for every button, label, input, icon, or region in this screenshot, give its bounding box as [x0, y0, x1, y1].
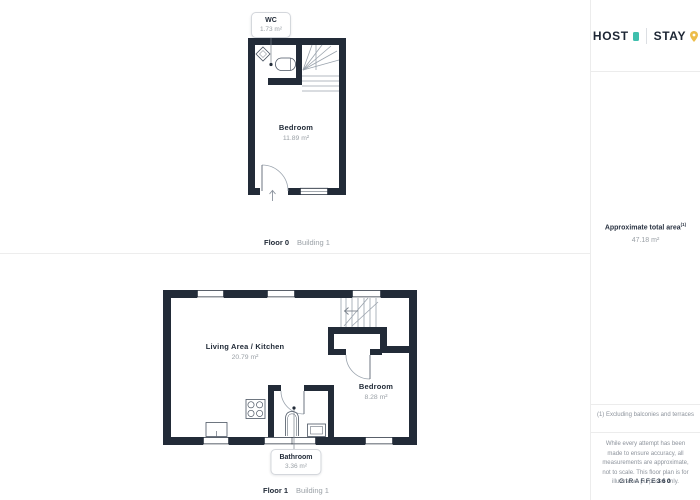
room-name: Living Area / Kitchen — [206, 342, 285, 351]
bathroom-area: 3.36 m² — [279, 463, 312, 470]
floor0-stair-wall — [296, 45, 302, 85]
logo-stay-text: STAY — [654, 29, 686, 43]
floor0-plan — [248, 37, 346, 201]
floor-label: Floor 0 — [264, 238, 289, 247]
bathroom-label-box: Bathroom 3.36 m² — [270, 449, 321, 475]
wc-corner-sink-icon — [256, 47, 270, 61]
wc-area: 1.73 m² — [260, 26, 282, 33]
total-area-value: 47.18 m² — [591, 237, 700, 244]
host-door-icon — [633, 32, 639, 41]
floors-divider — [0, 253, 590, 254]
floor0-wc-fixtures — [256, 47, 296, 71]
logo-host-text: HOST — [593, 29, 629, 43]
floor0-bedroom-label: Bedroom 11.89 m² — [279, 123, 313, 142]
floor1-bathroom-fixtures — [286, 412, 326, 437]
floor1-bedroom-label: Bedroom 8.28 m² — [359, 382, 393, 401]
total-area-label: Approximate total area(1) — [591, 222, 700, 231]
building-label: Building 1 — [296, 486, 329, 495]
room-name: Bedroom — [359, 382, 393, 391]
giraffe360-logo: GIRAFFE360 — [591, 478, 700, 485]
giraffe-360-text: 360 — [657, 478, 672, 485]
sidebar-divider-footnote-bottom — [591, 432, 700, 433]
total-area-block: Approximate total area(1) 47.18 m² — [591, 222, 700, 244]
room-name: Bedroom — [279, 123, 313, 132]
room-area: 11.89 m² — [279, 135, 313, 142]
wc-label-box: WC 1.73 m² — [251, 12, 291, 38]
floor1-plan — [163, 290, 417, 450]
stairs-direction-arrow-icon — [345, 308, 359, 315]
floor1-kitchen-fixtures — [206, 400, 265, 437]
giraffe-text: GIRAFFE — [619, 478, 657, 485]
floor0-entry-door — [260, 165, 288, 196]
wc-label-leader-dot — [269, 63, 272, 66]
bathroom-label-leader-dot — [292, 406, 295, 409]
floor1-caption: Floor 1Building 1 — [263, 480, 329, 498]
host-stay-logo: HOST STAY — [591, 28, 700, 44]
info-sidebar: HOST STAY Approximate total area(1) 47.1… — [590, 0, 700, 500]
sidebar-divider-top — [591, 71, 700, 72]
floor1-living-label: Living Area / Kitchen 20.79 m² — [206, 342, 285, 361]
room-area: 8.28 m² — [359, 394, 393, 401]
area-footnote: (1) Excluding balconies and terraces — [591, 412, 700, 418]
floor1-bathroom-door — [281, 391, 304, 414]
stay-pin-icon — [690, 31, 698, 42]
floor0-stairs-icon — [302, 45, 339, 91]
floor0-window — [300, 188, 328, 196]
building-label: Building 1 — [297, 238, 330, 247]
bathroom-name: Bathroom — [279, 454, 312, 461]
wc-name: WC — [260, 17, 282, 24]
floor-label: Floor 1 — [263, 486, 288, 495]
bathroom-sink-icon — [308, 424, 326, 437]
total-area-superscript: (1) — [681, 222, 687, 227]
wc-toilet-icon — [276, 58, 296, 71]
sidebar-divider-footnote-top — [591, 404, 700, 405]
room-area: 20.79 m² — [206, 354, 285, 361]
floorplan-page: WC 1.73 m² Bedroom 11.89 m² Floor 0Build… — [0, 0, 700, 500]
floor1-bedroom-door — [346, 355, 370, 379]
logo-separator — [646, 28, 647, 44]
floor0-caption: Floor 0Building 1 — [264, 232, 330, 250]
total-area-label-text: Approximate total area — [605, 224, 681, 231]
